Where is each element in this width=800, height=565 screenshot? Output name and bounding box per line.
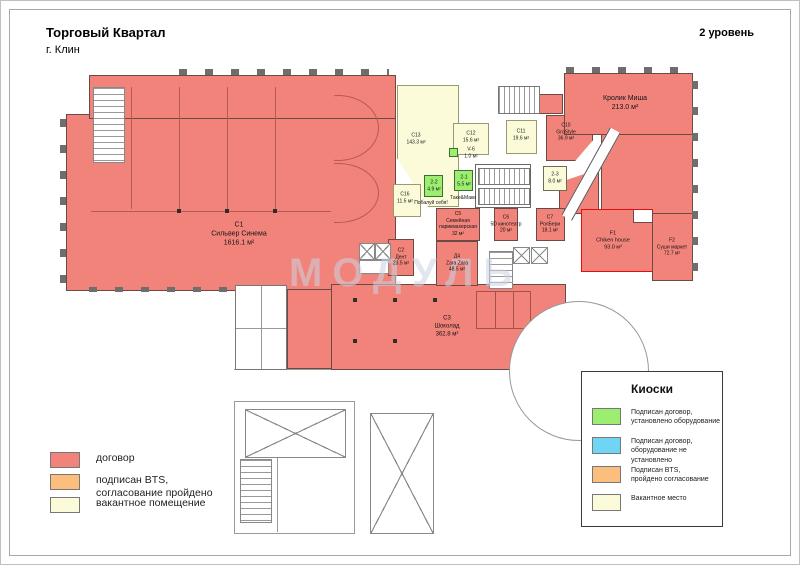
floor-plan-sheet: Торговый Квартал г. Клин 2 уровень bbox=[0, 0, 800, 565]
legend-swatch-vacant bbox=[50, 497, 80, 513]
tech-block bbox=[235, 285, 287, 370]
kiosk-legend-label: Вакантное место bbox=[631, 494, 687, 503]
wall-line bbox=[275, 87, 276, 209]
elevator-shaft bbox=[531, 247, 548, 264]
escalator-band bbox=[478, 168, 530, 185]
legend-row-contract: договор bbox=[50, 452, 135, 468]
kiosk-legend-row-vacant: Вакантное место bbox=[592, 494, 687, 511]
facade-marks-bottom bbox=[89, 287, 239, 292]
kiosk-2-1 bbox=[454, 170, 473, 191]
kiosk-legend-row-bts: Подписан BTS,пройдено согласование bbox=[592, 466, 709, 485]
column-marker bbox=[393, 339, 397, 343]
column-marker bbox=[225, 209, 229, 213]
kiosk-legend-label: Подписан BTS,пройдено согласование bbox=[631, 466, 709, 485]
elevator-shaft bbox=[375, 243, 391, 260]
elevator-lobby bbox=[359, 260, 389, 274]
kiosk-legend-label: Подписан договор,оборудование не установ… bbox=[631, 437, 722, 465]
room-right-column bbox=[601, 134, 693, 214]
kiosk-legend-title: Киоски bbox=[582, 382, 722, 396]
elevator-shaft bbox=[513, 247, 530, 264]
page-title: Торговый Квартал bbox=[46, 25, 166, 40]
facade-marks-top-left bbox=[179, 69, 389, 75]
kiosk-2-2 bbox=[424, 175, 443, 197]
room-d4 bbox=[436, 241, 478, 286]
wall-line bbox=[179, 87, 180, 209]
kiosk-legend-box: Киоски Подписан договор,установлено обор… bbox=[581, 371, 723, 527]
column-marker bbox=[353, 298, 357, 302]
page-subtitle: г. Клин bbox=[46, 44, 80, 56]
lower-stairs bbox=[240, 459, 272, 523]
facade-marks-right bbox=[692, 81, 698, 276]
facade-marks-top-right bbox=[566, 67, 693, 73]
room-c11 bbox=[506, 120, 537, 154]
room-f1-notch bbox=[633, 210, 652, 223]
legend-swatch-bts bbox=[50, 474, 80, 490]
room-c16 bbox=[393, 184, 421, 217]
room-c5 bbox=[436, 208, 480, 241]
escalator bbox=[475, 164, 531, 208]
column-marker bbox=[393, 298, 397, 302]
room-f2 bbox=[652, 213, 693, 281]
wc-block bbox=[476, 291, 531, 329]
kiosk-legend-row-installed: Подписан договор,установлено оборудовани… bbox=[592, 408, 720, 427]
room-c12 bbox=[453, 123, 489, 155]
legend-swatch-contract bbox=[50, 452, 80, 468]
legend-label-contract: договор bbox=[96, 452, 135, 465]
room-c7 bbox=[536, 208, 565, 241]
kiosk-legend-label: Подписан договор,установлено оборудовани… bbox=[631, 408, 720, 427]
kiosk-legend-swatch-blue bbox=[592, 437, 621, 454]
lower-crossed-bay-left bbox=[245, 409, 346, 458]
elevator-shaft bbox=[359, 243, 375, 260]
column-marker bbox=[273, 209, 277, 213]
lower-crossed-bay-right bbox=[370, 413, 434, 534]
wall-line bbox=[131, 87, 132, 209]
column-marker bbox=[433, 298, 437, 302]
facade-marks-left bbox=[60, 119, 66, 287]
wall-line bbox=[91, 211, 331, 212]
kiosk-legend-swatch-green bbox=[592, 408, 621, 425]
kiosk-legend-swatch-orange bbox=[592, 466, 621, 483]
lower-divider bbox=[277, 456, 278, 532]
legend-row-vacant: вакантное помещение bbox=[50, 497, 205, 513]
column-marker bbox=[353, 339, 357, 343]
tech-block-divider bbox=[261, 286, 262, 369]
kiosk-legend-swatch-cream bbox=[592, 494, 621, 511]
column-marker bbox=[177, 209, 181, 213]
kiosk-v6 bbox=[449, 148, 458, 157]
legend-label-vacant: вакантное помещение bbox=[96, 497, 205, 510]
wc-divider bbox=[513, 292, 514, 328]
kiosk-legend-row-not-installed: Подписан договор,оборудование не установ… bbox=[592, 437, 722, 465]
wc-divider bbox=[495, 292, 496, 328]
room-small-top bbox=[539, 94, 563, 114]
stairs-top-center bbox=[498, 86, 540, 114]
room-c6 bbox=[494, 208, 518, 241]
level-label: 2 уровень bbox=[699, 27, 754, 39]
wall-line bbox=[227, 87, 228, 209]
room-c1-strip bbox=[287, 289, 333, 369]
kiosk-2-3 bbox=[543, 166, 567, 191]
stairs-center bbox=[489, 251, 513, 289]
escalator-band bbox=[478, 188, 530, 205]
stairs-top-left bbox=[93, 87, 125, 163]
room-c2 bbox=[388, 239, 414, 276]
room-krolik-misha bbox=[564, 73, 693, 135]
